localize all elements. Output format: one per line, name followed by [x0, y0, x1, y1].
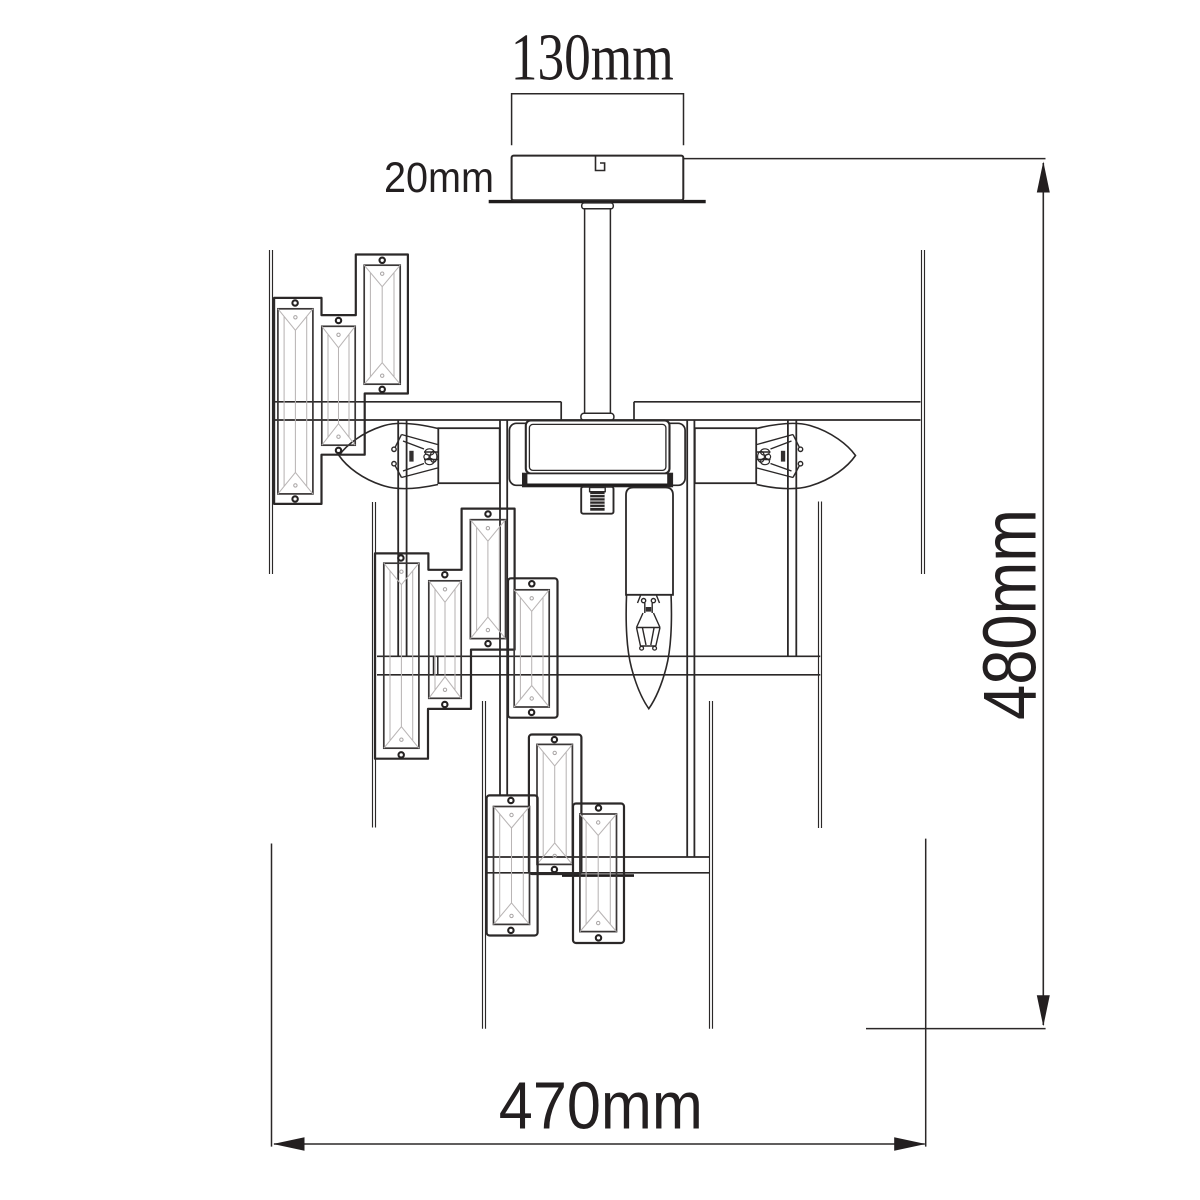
- svg-text:130mm: 130mm: [511, 22, 674, 95]
- svg-text:20mm: 20mm: [384, 154, 494, 202]
- svg-text:470mm: 470mm: [499, 1069, 703, 1144]
- svg-text:480mm: 480mm: [968, 509, 1052, 720]
